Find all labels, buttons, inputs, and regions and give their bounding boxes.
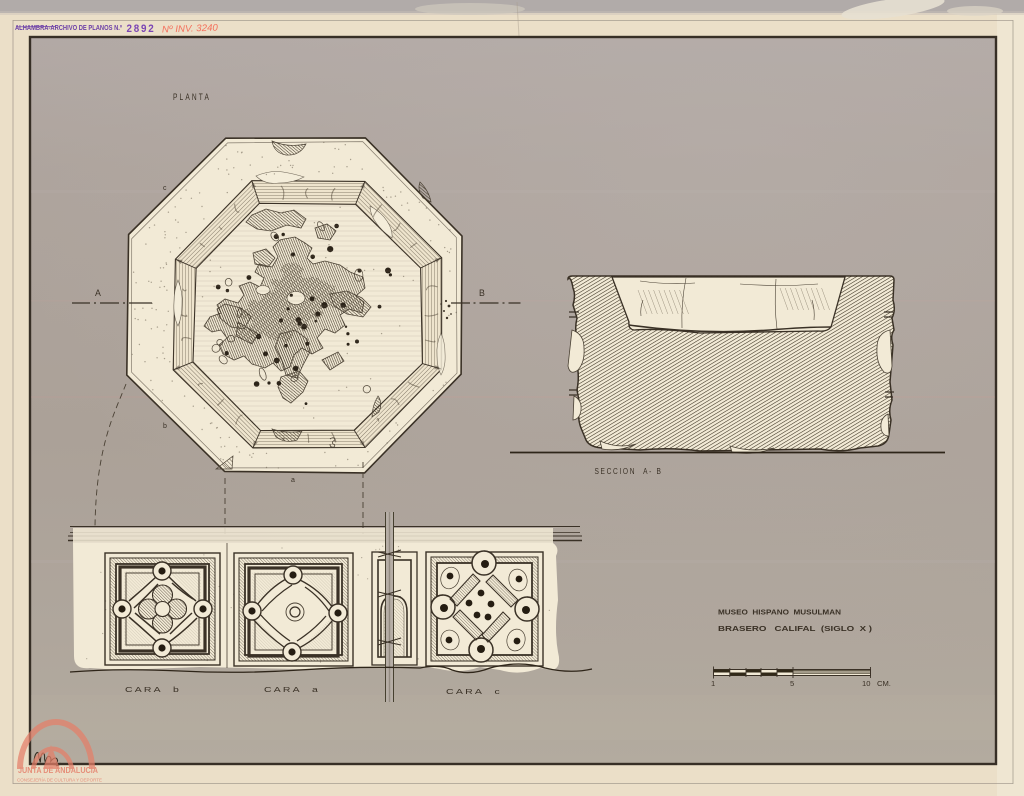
- svg-text:BRASERO CALIFAL (SIGLO X ): BRASERO CALIFAL (SIGLO X ): [718, 624, 873, 633]
- svg-text:CARA a: CARA a: [264, 685, 320, 694]
- svg-text:CARA c: CARA c: [446, 687, 502, 696]
- svg-text:PLANTA: PLANTA: [173, 92, 211, 102]
- svg-text:10: 10: [862, 679, 870, 688]
- svg-text:a: a: [291, 477, 295, 484]
- svg-text:SECCION A- B: SECCION A- B: [595, 467, 663, 476]
- svg-text:5: 5: [790, 679, 794, 688]
- svg-text:1: 1: [711, 679, 715, 688]
- svg-text:CM.: CM.: [877, 679, 891, 688]
- svg-text:JUNTA DE ANDALUCIA: JUNTA DE ANDALUCIA: [18, 765, 98, 775]
- svg-text:b: b: [163, 423, 167, 430]
- svg-text:CONSEJERÍA DE CULTURA Y DEPORT: CONSEJERÍA DE CULTURA Y DEPORTE: [17, 777, 102, 783]
- svg-text:A: A: [95, 288, 101, 298]
- svg-text:B: B: [479, 288, 485, 298]
- svg-text:2892: 2892: [127, 23, 156, 35]
- svg-text:ALHAMBRA-ARCHIVO DE PLANOS N.º: ALHAMBRA-ARCHIVO DE PLANOS N.º: [15, 23, 122, 32]
- svg-text:CARA b: CARA b: [125, 685, 181, 694]
- svg-text:c: c: [163, 185, 167, 192]
- svg-text:Nº INV. 3240: Nº INV. 3240: [162, 23, 219, 36]
- svg-text:MUSEO HISPANO MUSULMAN: MUSEO HISPANO MUSULMAN: [718, 608, 841, 617]
